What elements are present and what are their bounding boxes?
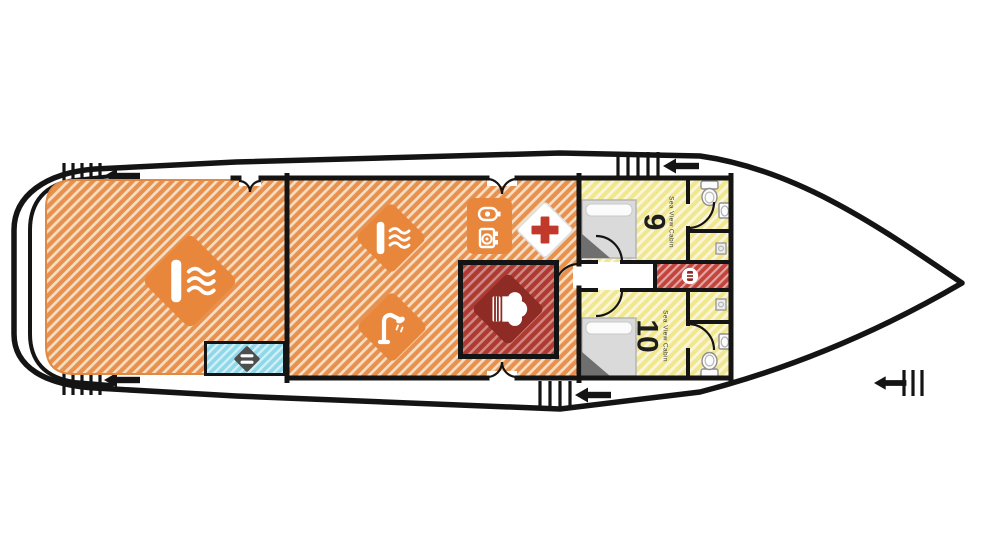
bed-cabin-9 <box>582 200 636 258</box>
gangway-marker-bow <box>874 370 922 396</box>
vanity-icon <box>716 299 726 310</box>
corridor <box>582 262 658 290</box>
deck-plan: 9 Sea View Cabin 10 Sea View Cabin <box>0 0 1000 558</box>
aft-deck <box>46 180 287 375</box>
bed-cabin-10 <box>582 318 636 376</box>
pillow <box>586 204 632 216</box>
salon <box>287 178 579 378</box>
cabin-10-label: Sea View Cabin <box>662 310 669 362</box>
deck-plan-canvas: 9 Sea View Cabin 10 Sea View Cabin <box>0 0 1000 558</box>
electronics-badge <box>467 198 512 254</box>
left-arrow-icon <box>874 376 906 390</box>
galley <box>461 263 557 357</box>
cabin-9-label: Sea View Cabin <box>668 196 675 248</box>
cabin-10-number: 10 <box>631 319 664 352</box>
swim-platform <box>206 343 285 375</box>
pillow <box>586 322 632 334</box>
stairs-icon <box>682 268 698 284</box>
cabin-9-number: 9 <box>638 214 671 231</box>
vanity-icon <box>716 243 726 254</box>
